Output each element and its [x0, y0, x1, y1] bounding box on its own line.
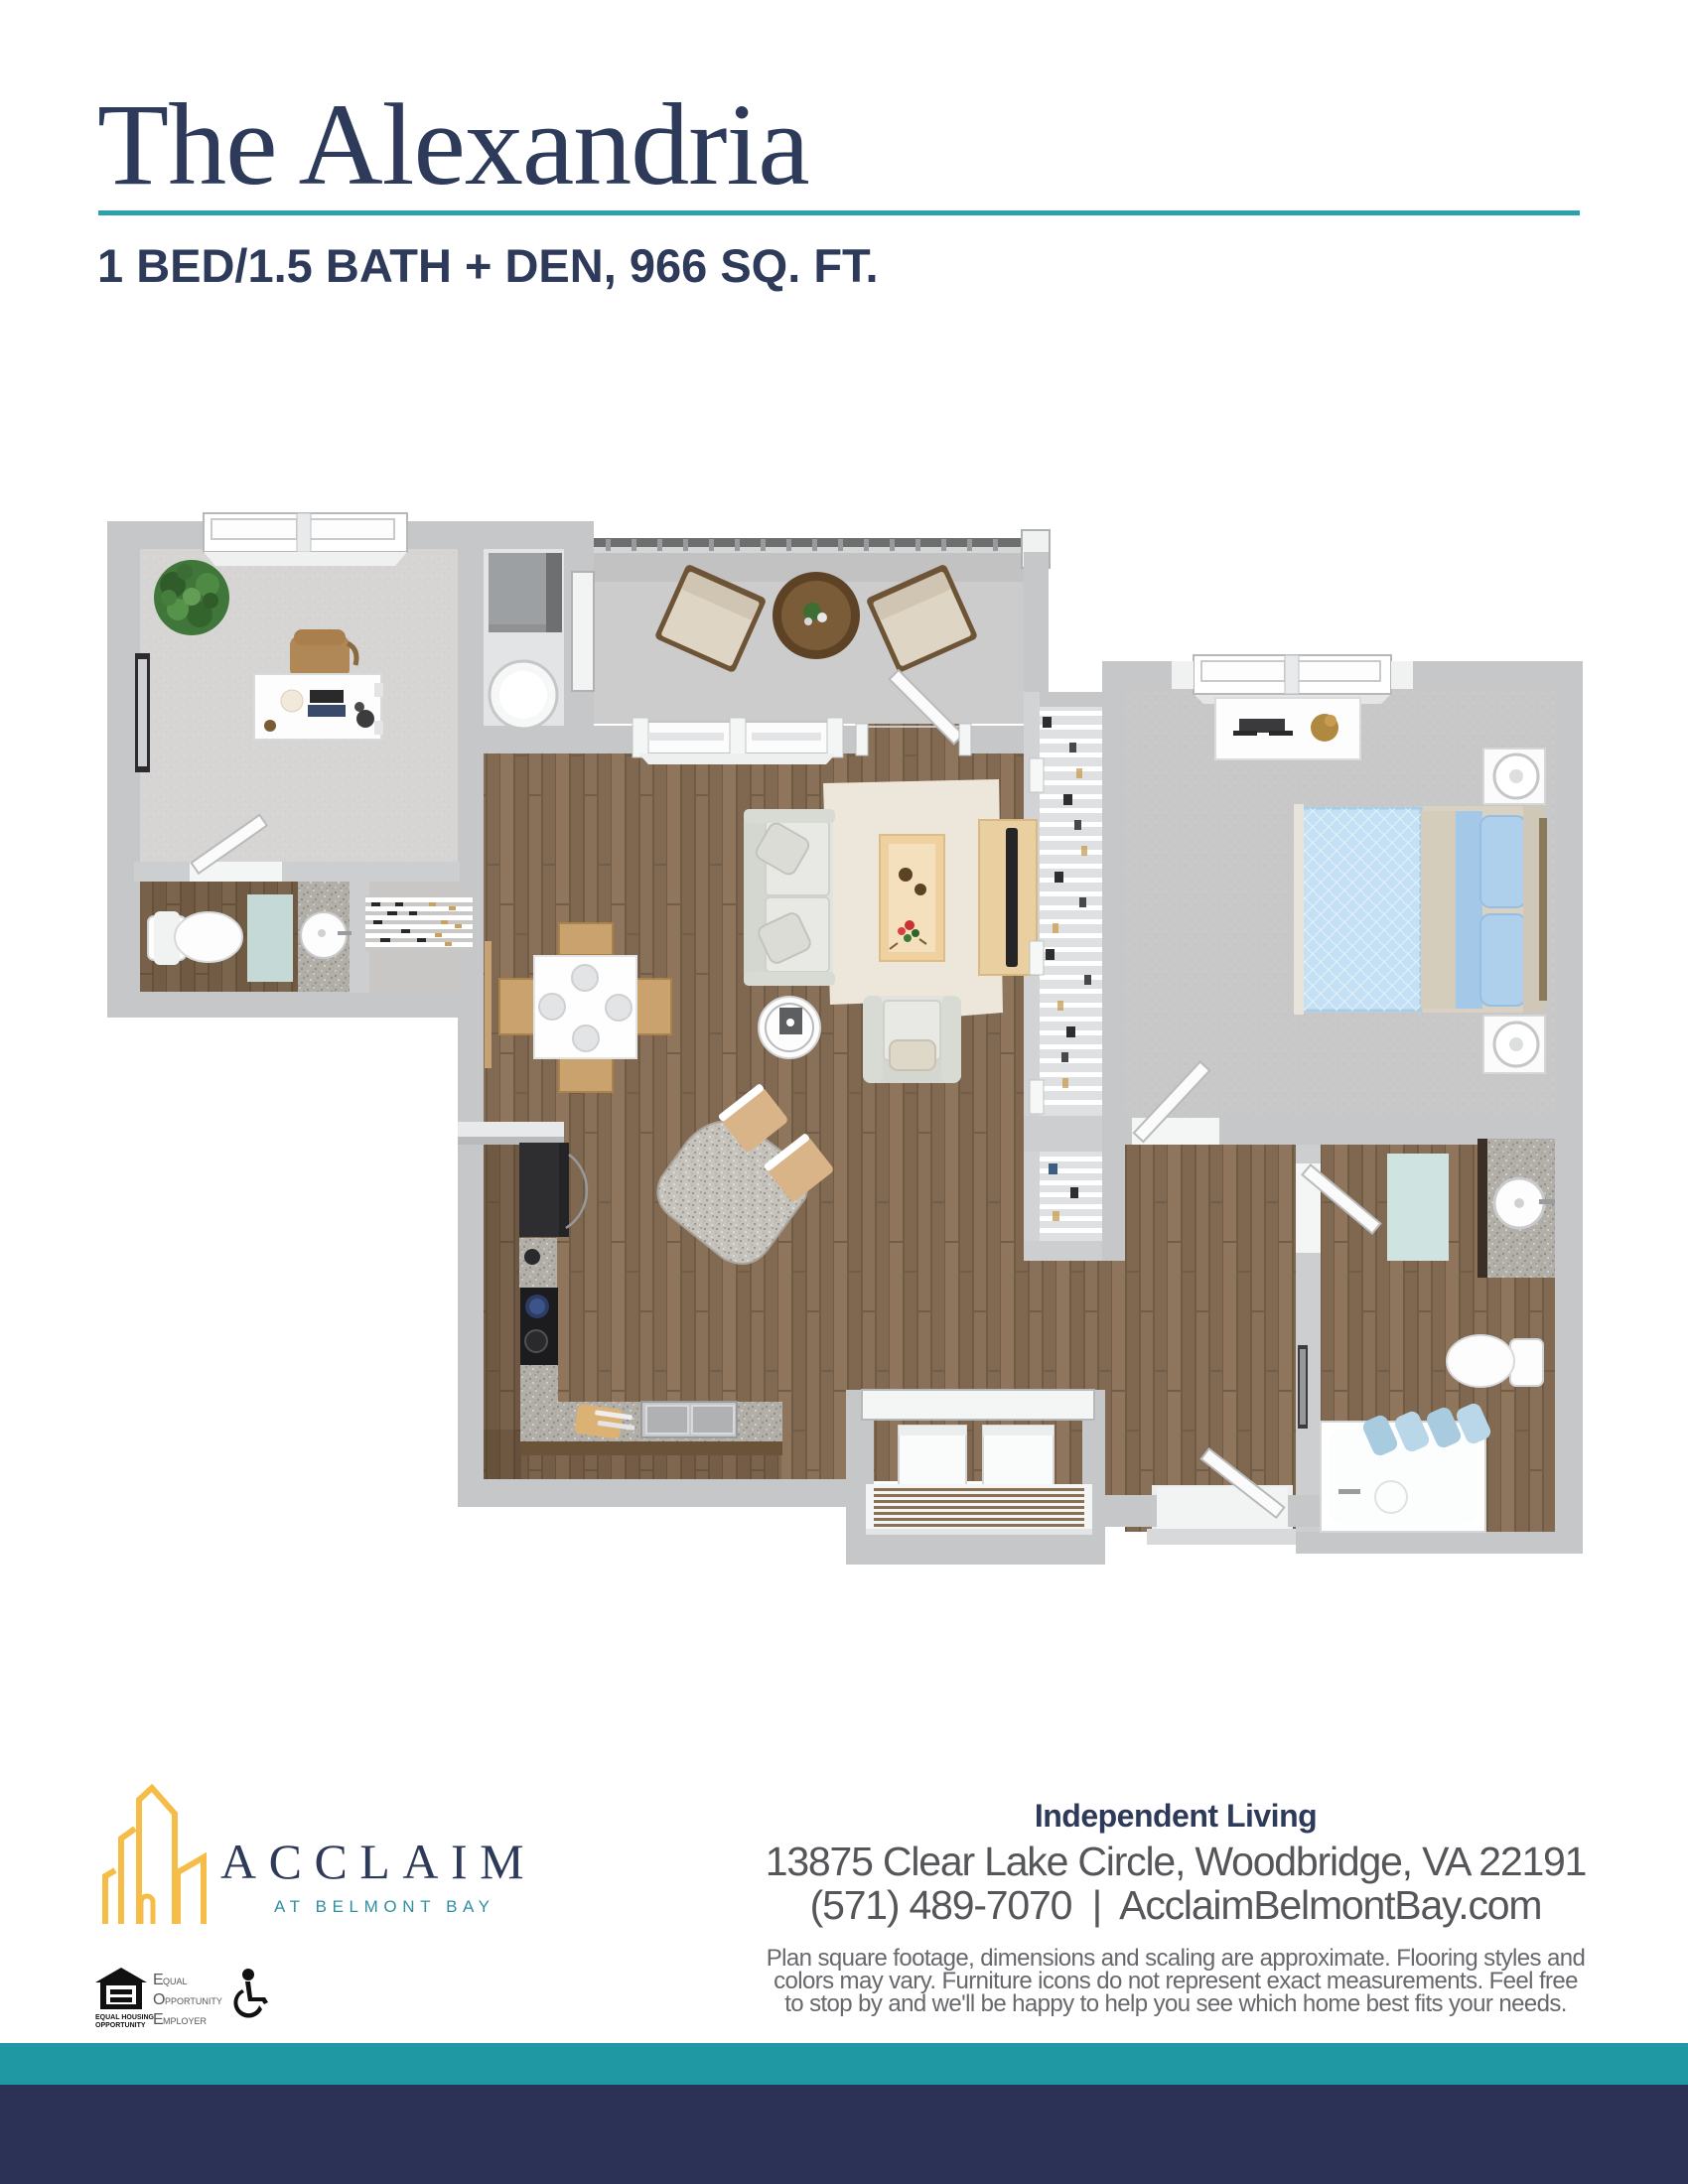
svg-text:ACCLAIM: ACCLAIM: [220, 1834, 536, 1889]
svg-text:OPPORTUNITY: OPPORTUNITY: [95, 2022, 146, 2029]
svg-text:QUAL: QUAL: [163, 1977, 188, 1986]
svg-text:AT BELMONT BAY: AT BELMONT BAY: [274, 1897, 495, 1916]
svg-text:O: O: [153, 1991, 165, 2008]
svg-text:PPORTUNITY: PPORTUNITY: [165, 1996, 222, 2006]
svg-text:MPLOYER: MPLOYER: [163, 2016, 208, 2026]
svg-text:EQUAL HOUSING: EQUAL HOUSING: [95, 2014, 155, 2021]
